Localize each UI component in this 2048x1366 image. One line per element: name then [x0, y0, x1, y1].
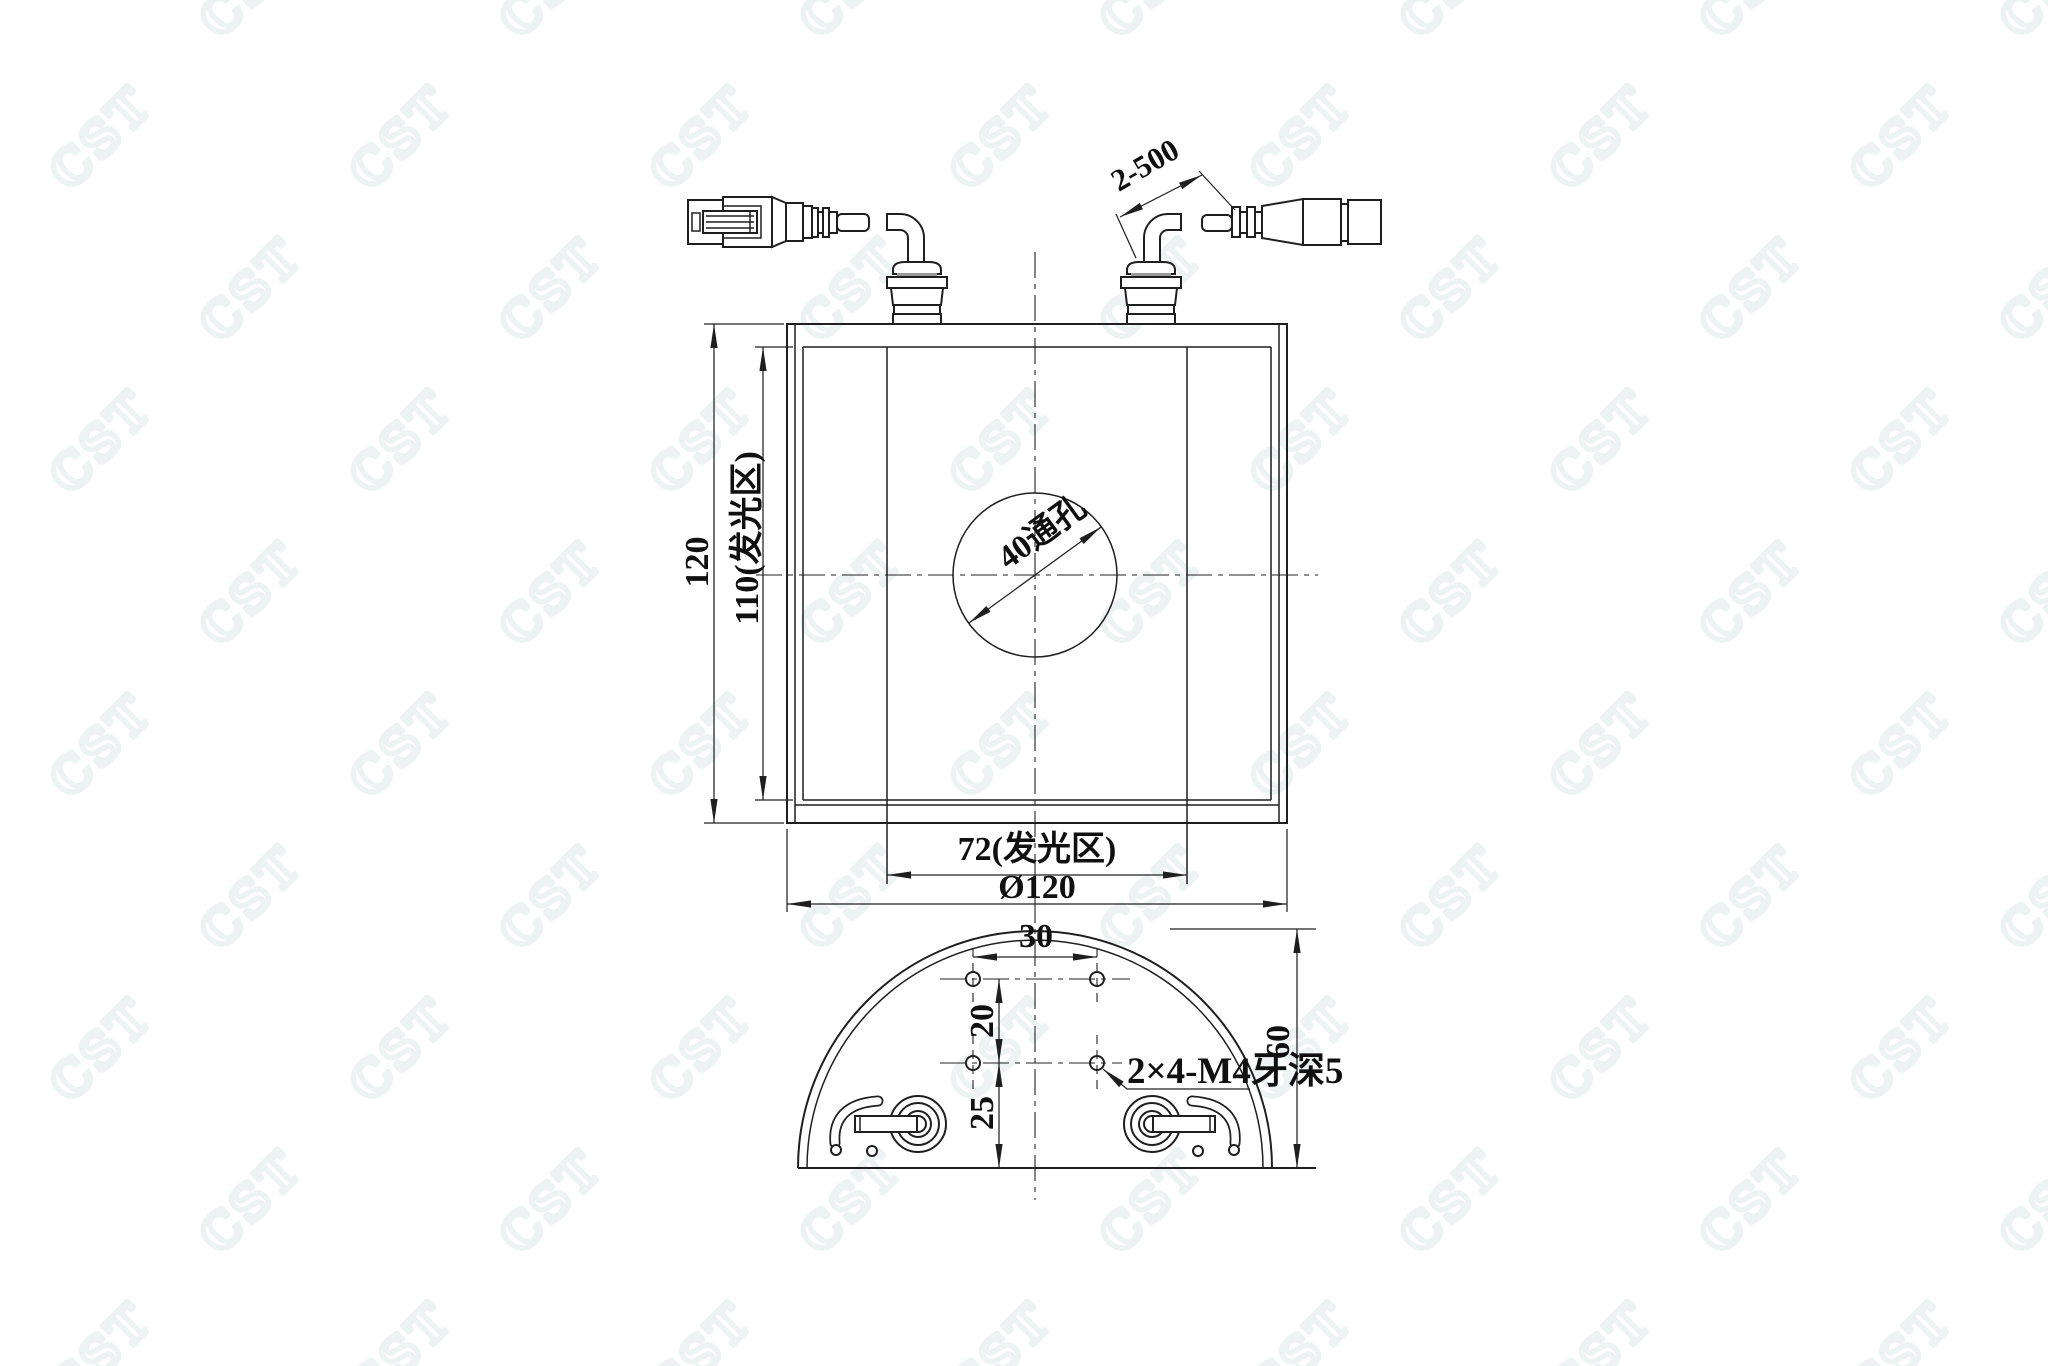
watermark-text: CST — [0, 1140, 14, 1265]
watermark-text: CST — [339, 1292, 464, 1366]
watermark-text: CST — [189, 532, 314, 657]
watermark-text: CST — [639, 988, 764, 1113]
watermark-text: CST — [39, 380, 164, 505]
watermark-text: CST — [639, 684, 764, 809]
watermark-text: CST — [789, 836, 914, 961]
watermark-text: CST — [339, 988, 464, 1113]
watermark-text: CST — [489, 1140, 614, 1265]
watermark-text: CST — [339, 684, 464, 809]
watermark-text: CST — [39, 76, 164, 201]
right-connector-boot — [1262, 199, 1303, 245]
watermark-text: CST — [1689, 0, 1814, 48]
watermark-text: CST — [1689, 1140, 1814, 1265]
watermark-text: CST — [1089, 0, 1214, 48]
watermark-text: CST — [489, 532, 614, 657]
watermark-text: CST — [1989, 836, 2048, 961]
watermark-text: CST — [189, 836, 314, 961]
watermark-text: CST — [1389, 228, 1514, 353]
watermark-text: CST — [789, 0, 914, 48]
bottom-gland-left — [831, 1096, 946, 1156]
watermark-text: CST — [39, 1292, 164, 1366]
watermark-text: CST — [0, 228, 14, 353]
watermark-text: CST — [1239, 76, 1364, 201]
watermark-text: CST — [639, 76, 764, 201]
watermark-text: CST — [339, 380, 464, 505]
dim-cable-length-label: 2-500 — [1105, 132, 1185, 198]
watermark-text: CST — [1539, 684, 1664, 809]
hole-diameter-label: 40通孔 — [991, 489, 1092, 576]
watermark-text: CST — [189, 0, 314, 48]
watermark-text: CST — [1989, 228, 2048, 353]
watermark-text: CST — [1689, 228, 1814, 353]
watermark-text: CST — [939, 1292, 1064, 1366]
watermark-text: CST — [1689, 532, 1814, 657]
watermark-text: CST — [189, 228, 314, 353]
watermark-text: CST — [1089, 532, 1214, 657]
right-connector-cap — [1348, 200, 1381, 244]
dim-width-glow-label: 72(发光区) — [958, 830, 1117, 868]
watermark-text: CST — [0, 0, 14, 48]
watermark-text: CST — [789, 532, 914, 657]
thread-note: 2×4-M4牙深5 — [1103, 1050, 1343, 1092]
watermark-text: CST — [189, 1140, 314, 1265]
watermark-text: CST — [1239, 684, 1364, 809]
watermark-text: CST — [339, 76, 464, 201]
watermark-text: CST — [1839, 988, 1964, 1113]
watermark-text: CST — [939, 380, 1064, 505]
watermark-text: CST — [1389, 532, 1514, 657]
watermark-text: CST — [489, 0, 614, 48]
left-connector-taper — [772, 197, 786, 247]
watermark-text: CST — [939, 684, 1064, 809]
watermark-text: CST — [489, 836, 614, 961]
watermark-text: CST — [1539, 76, 1664, 201]
watermark-text: CST — [1239, 380, 1364, 505]
right-crimp-ring — [1232, 207, 1240, 237]
watermark-text: CST — [489, 228, 614, 353]
right-connector-body — [1303, 199, 1341, 245]
watermark-text: CST — [39, 988, 164, 1113]
watermark-text: CST — [0, 532, 14, 657]
watermark-text: CST — [1839, 76, 1964, 201]
watermark-text: CST — [639, 1292, 764, 1366]
watermark-text: CST — [1539, 380, 1664, 505]
watermark-text: CST — [1089, 1140, 1214, 1265]
watermark-text: CST — [1839, 684, 1964, 809]
watermark-text: CST — [1989, 532, 2048, 657]
watermark-text: CST — [1989, 1140, 2048, 1265]
dim-height-total-label: 120 — [679, 537, 716, 588]
watermark-text: CST — [1539, 988, 1664, 1113]
dim-hole-spacing-x-label: 30 — [1019, 918, 1053, 955]
right-cable-gland — [1121, 262, 1181, 324]
bottom-view: 30 20 25 60 2×4-M4牙深5 — [798, 918, 1343, 1168]
watermark-text: CST — [1389, 836, 1514, 961]
dim-height-glow-label: 110(发光区) — [728, 451, 766, 625]
watermark-text: CST — [0, 836, 14, 961]
watermark-text: CST — [1839, 1292, 1964, 1366]
watermark-layer: CSTCSTCSTCSTCSTCSTCSTCSTCSTCSTCSTCSTCSTC… — [0, 0, 2048, 1366]
right-cable-stub — [1202, 215, 1232, 231]
watermark-text: CST — [939, 76, 1064, 201]
dim-hole-spacing-y-label: 20 — [964, 1004, 1001, 1038]
left-connector-collar — [786, 203, 803, 241]
watermark-text: CST — [1389, 1140, 1514, 1265]
dim-width-total-label: Ø120 — [998, 869, 1075, 906]
watermark-text: CST — [1389, 0, 1514, 48]
cad-drawing-canvas: CSTCSTCSTCSTCSTCSTCSTCSTCSTCSTCSTCSTCSTC… — [0, 0, 2048, 1366]
watermark-text: CST — [1239, 1292, 1364, 1366]
dim-hole-offset-bottom-label: 25 — [964, 1096, 1001, 1130]
watermark-text: CST — [39, 684, 164, 809]
watermark-text: CST — [1839, 380, 1964, 505]
watermark-text: CST — [1989, 0, 2048, 48]
left-cable-stub — [837, 214, 869, 231]
dim-hole-spacing-x: 30 — [973, 918, 1097, 957]
left-cable-gland — [887, 262, 947, 324]
watermark-text: CST — [939, 988, 1064, 1113]
thread-note-label: 2×4-M4牙深5 — [1127, 1050, 1343, 1092]
watermark-text: CST — [1539, 1292, 1664, 1366]
watermark-text: CST — [1689, 836, 1814, 961]
